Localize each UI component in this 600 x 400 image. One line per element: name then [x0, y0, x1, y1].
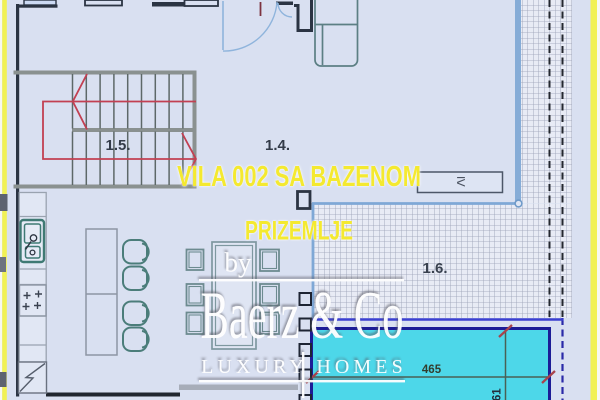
svg-text:261: 261 — [492, 388, 504, 400]
svg-text:1.4.: 1.4. — [265, 137, 290, 154]
svg-text:by: by — [225, 248, 253, 278]
svg-text:465: 465 — [422, 364, 442, 376]
svg-text:1.6.: 1.6. — [422, 260, 447, 277]
svg-text:Baerz & Co: Baerz & Co — [201, 278, 404, 354]
svg-text:VILA 002 SA BAZENOM: VILA 002 SA BAZENOM — [177, 161, 421, 193]
svg-text:≥: ≥ — [456, 173, 465, 190]
svg-text:1.5.: 1.5. — [105, 137, 130, 154]
svg-text:PRIZEMLJE: PRIZEMLJE — [245, 215, 353, 245]
